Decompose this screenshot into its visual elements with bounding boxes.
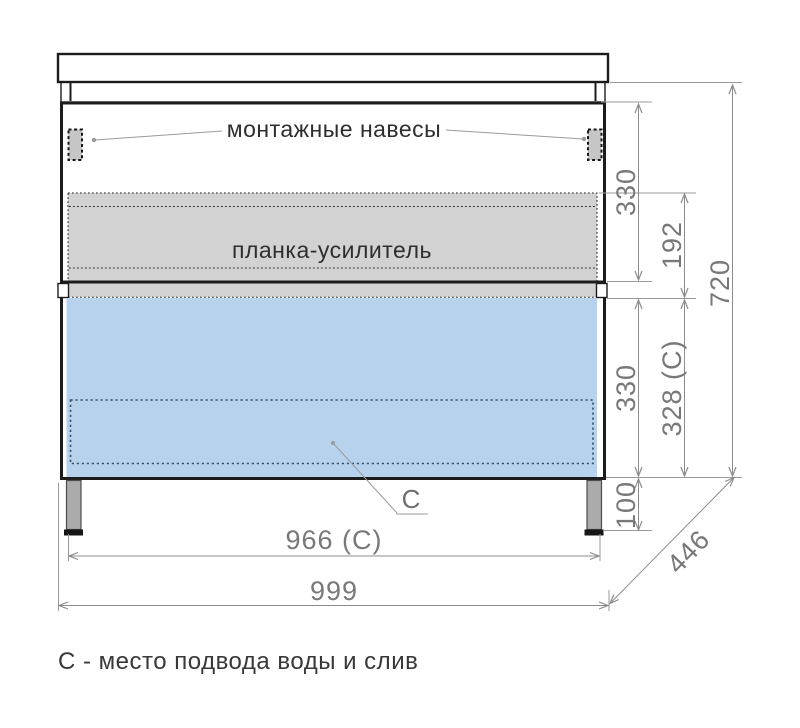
hanger-leader-right (446, 130, 583, 139)
countertop (58, 54, 608, 82)
reinforcement-strip-label: планка-усилитель (232, 237, 432, 263)
dim-value: 100 (611, 481, 641, 529)
reinforcement-strip: планка-усилитель (68, 193, 597, 281)
leg-right-foot (585, 530, 604, 536)
lower-rail (58, 284, 607, 298)
dim-total-height-720: 720 (705, 85, 736, 476)
drawer-front (67, 298, 598, 477)
lower-rail-strip (68, 284, 597, 298)
apron (61, 82, 605, 102)
vanity-technical-drawing: планка-усилитель монтажные навесы (0, 0, 800, 728)
dim-value: 192 (657, 221, 687, 269)
dim-lower-height-328c: 328 (C) (657, 300, 688, 476)
dim-width-999: 999 (59, 576, 608, 609)
hanger-leader-left (95, 131, 222, 140)
dim-value: 966 (C) (285, 525, 382, 555)
apron-rail (61, 82, 605, 102)
dim-width-966c: 966 (C) (69, 525, 599, 560)
mounting-hanger-right (588, 130, 602, 161)
dim-lower-height-330: 330 (611, 300, 642, 476)
dim-value: 330 (611, 364, 641, 412)
hanger-leader-right-dot (582, 137, 586, 141)
dim-value: 328 (C) (657, 339, 687, 436)
technical-drawing-page: планка-усилитель монтажные навесы (0, 0, 800, 728)
leg-right-post (587, 481, 602, 530)
leg-left-foot (64, 530, 83, 536)
drawer-front-panel (67, 298, 598, 477)
hanger-leader-left-dot (92, 138, 96, 142)
hanger-right-block (588, 130, 602, 161)
dim-value: 330 (611, 168, 641, 216)
c-marker-label: C (402, 484, 421, 514)
dim-strip-offset-192: 192 (657, 194, 688, 297)
mounting-hangers-callout: монтажные навесы (92, 116, 586, 142)
mounting-hangers-label: монтажные навесы (227, 116, 441, 142)
dim-value: 720 (705, 259, 735, 307)
mounting-hanger-left (69, 130, 83, 161)
countertop-slab (58, 54, 608, 82)
dim-upper-height-330: 330 (611, 104, 642, 280)
hanger-left-block (69, 130, 83, 161)
dim-value: 999 (310, 576, 358, 606)
side-panel-notch-left (58, 284, 69, 298)
dim-leg-height-100: 100 (611, 479, 642, 530)
dim-value: 446 (661, 524, 716, 579)
leg-right (585, 481, 604, 536)
drawing-caption: С - место подвода воды и слив (58, 648, 418, 675)
side-panel-notch-right (597, 284, 608, 298)
leg-left-post (67, 481, 82, 530)
leg-left (64, 481, 83, 536)
